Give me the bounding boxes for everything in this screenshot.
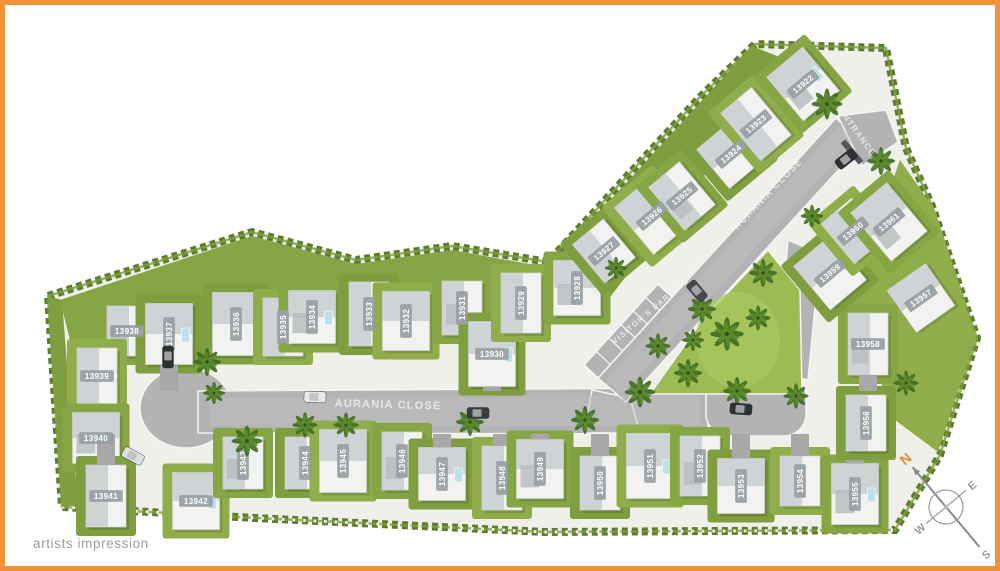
palm-tree-icon xyxy=(812,89,843,120)
driveway xyxy=(791,434,809,456)
lot-number: 13954 xyxy=(796,469,805,493)
lot-number: 13945 xyxy=(339,449,348,473)
lot-number: 13928 xyxy=(573,276,582,300)
palm-tree-icon xyxy=(333,412,358,437)
pool xyxy=(182,328,190,342)
site-plan-svg: 1393813937139391394013941139421394313936… xyxy=(0,0,1000,571)
lot-label: 13933 xyxy=(364,298,375,331)
palm-tree-icon xyxy=(674,359,702,387)
artists-impression-note: artists impression xyxy=(33,536,149,551)
lot-number: 13942 xyxy=(184,497,208,506)
lot-number: 13931 xyxy=(458,296,467,320)
palm-trunk xyxy=(656,344,659,347)
car-windshield xyxy=(164,352,172,361)
lot-label: 13931 xyxy=(457,292,468,325)
car xyxy=(730,403,753,416)
palm-trunk xyxy=(825,102,829,106)
lot-label: 13940 xyxy=(80,433,113,444)
palm-tree-icon xyxy=(571,406,599,434)
lot-label: 13944 xyxy=(300,447,311,480)
lot-number: 13932 xyxy=(402,309,411,333)
palm-trunk xyxy=(735,389,739,393)
lot-number: 13934 xyxy=(308,305,317,329)
lot-label: 13935 xyxy=(278,311,289,344)
lot-number: 13944 xyxy=(301,451,310,475)
pool xyxy=(868,488,876,502)
lot-label: 13932 xyxy=(401,305,412,338)
palm-trunk xyxy=(761,271,765,275)
car-windshield xyxy=(473,409,482,417)
lot-label: 13945 xyxy=(338,445,349,478)
lot-label: 13952 xyxy=(695,450,706,483)
pool xyxy=(663,460,671,474)
driveway xyxy=(531,434,549,440)
palm-trunk xyxy=(468,420,472,424)
lot-label: 13954 xyxy=(795,465,806,498)
driveway xyxy=(859,375,877,391)
lot-number: 13947 xyxy=(438,462,447,486)
site-plan-page: 1393813937139391394013941139421394313936… xyxy=(0,0,1000,571)
palm-trunk xyxy=(794,394,797,397)
driveway xyxy=(433,434,451,448)
palm-trunk xyxy=(205,360,209,364)
lot-label: 13956 xyxy=(861,407,872,440)
palm-trunk xyxy=(615,267,618,270)
lot-number: 13940 xyxy=(84,434,108,443)
lot-number: 13953 xyxy=(737,474,746,498)
driveway xyxy=(732,434,750,459)
lot-number: 13936 xyxy=(232,312,241,336)
lot-label: 13946 xyxy=(397,445,408,478)
lot-number: 13941 xyxy=(94,492,118,501)
lot-number: 13951 xyxy=(646,454,655,478)
palm-trunk xyxy=(756,316,759,319)
driveway xyxy=(160,365,178,392)
lot-label: 13950 xyxy=(595,467,606,500)
palm-trunk xyxy=(303,423,306,426)
palm-trunk xyxy=(344,423,347,426)
lot-label: 13938 xyxy=(111,326,144,337)
palm-trunk xyxy=(725,332,729,336)
lot-label: 13942 xyxy=(180,496,213,507)
lot-number: 13938 xyxy=(115,327,139,336)
palm-tree-icon xyxy=(893,370,918,395)
palm-tree-icon xyxy=(783,383,808,408)
palm-tree-icon xyxy=(193,348,221,376)
lot-number: 13946 xyxy=(398,449,407,473)
palm-tree-icon xyxy=(745,305,770,330)
car xyxy=(467,408,489,419)
lot-label: 13936 xyxy=(231,308,242,341)
lot-label: 13928 xyxy=(572,272,583,305)
palm-tree-icon xyxy=(710,317,744,351)
lot-number: 13930 xyxy=(480,350,504,359)
lot-number: 13952 xyxy=(696,454,705,478)
lot-label: 13930 xyxy=(476,349,509,360)
pool xyxy=(455,468,463,482)
central-park-light xyxy=(696,292,780,388)
palm-tree-icon xyxy=(645,333,670,358)
car-windshield xyxy=(735,405,745,413)
lot-label: 13951 xyxy=(645,450,656,483)
palm-trunk xyxy=(245,439,249,443)
palm-tree-icon xyxy=(749,259,777,287)
palm-tree-icon xyxy=(232,426,263,457)
driveway xyxy=(591,434,609,456)
lot-label: 13937 xyxy=(164,318,175,351)
lot-label: 13947 xyxy=(437,458,448,491)
site-plan-image: 1393813937139391394013941139421394313936… xyxy=(0,0,1000,571)
car xyxy=(163,346,174,368)
palm-trunk xyxy=(638,390,642,394)
lot-number: 13939 xyxy=(85,372,109,381)
compass-letter: E xyxy=(966,479,979,493)
palm-tree-icon xyxy=(203,382,225,404)
lot-label: 13941 xyxy=(90,491,123,502)
lot-label: 13948 xyxy=(497,462,508,495)
palm-tree-icon xyxy=(605,257,627,279)
palm-tree-icon xyxy=(625,377,656,408)
palm-trunk xyxy=(213,392,216,395)
lot-label: 13939 xyxy=(81,371,114,382)
lot-number: 13955 xyxy=(851,482,860,506)
palm-tree-icon xyxy=(292,412,317,437)
lot-label: 13949 xyxy=(535,453,546,486)
driveway xyxy=(483,387,501,392)
lot-number: 13935 xyxy=(279,315,288,339)
palm-trunk xyxy=(686,371,690,375)
palm-trunk xyxy=(583,418,587,422)
lot-number: 13956 xyxy=(862,411,871,435)
road-centre-light xyxy=(210,395,700,426)
palm-trunk xyxy=(879,159,883,163)
lot-number: 13958 xyxy=(856,340,880,349)
lot-label: 13929 xyxy=(516,287,527,320)
lot-label: 13953 xyxy=(736,470,747,503)
pool xyxy=(325,311,333,325)
lot-label: 13958 xyxy=(852,339,885,350)
lot-number: 13948 xyxy=(498,466,507,490)
compass-letter: S xyxy=(980,548,993,562)
car-windshield xyxy=(309,393,318,401)
lot-number: 13949 xyxy=(536,457,545,481)
palm-tree-icon xyxy=(801,205,823,227)
palm-trunk xyxy=(811,215,814,218)
lot-number: 13929 xyxy=(517,291,526,315)
palm-trunk xyxy=(700,307,704,311)
palm-trunk xyxy=(692,339,695,342)
lot-number: 13937 xyxy=(165,322,174,346)
lot-label: 13934 xyxy=(307,301,318,334)
palm-tree-icon xyxy=(723,377,751,405)
car xyxy=(304,391,326,403)
palm-trunk xyxy=(904,381,907,384)
lot-label: 13955 xyxy=(850,478,861,511)
palm-tree-icon xyxy=(682,329,704,351)
lot-number: 13950 xyxy=(596,471,605,495)
lot-number: 13933 xyxy=(365,302,374,326)
